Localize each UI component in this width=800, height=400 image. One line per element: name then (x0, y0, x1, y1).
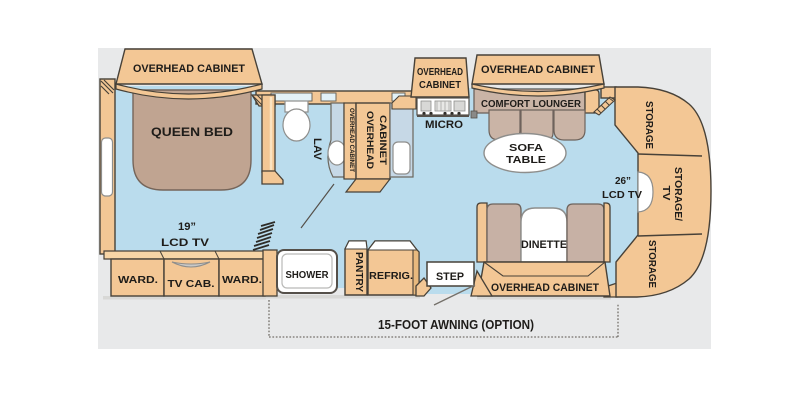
svg-text:LAV: LAV (311, 138, 323, 161)
svg-text:QUEEN BED: QUEEN BED (151, 125, 233, 139)
svg-text:TV CAB.: TV CAB. (168, 278, 215, 290)
svg-text:SHOWER: SHOWER (286, 269, 329, 281)
svg-text:OVERHEAD CABINET: OVERHEAD CABINET (491, 282, 599, 294)
svg-text:WARD.: WARD. (118, 274, 158, 286)
svg-text:REFRIG.: REFRIG. (369, 270, 413, 282)
svg-text:STORAGE: STORAGE (643, 101, 654, 149)
svg-text:OVERHEAD CABINET: OVERHEAD CABINET (348, 108, 354, 172)
svg-text:MICRO: MICRO (425, 119, 463, 131)
svg-text:LCD TV: LCD TV (161, 237, 210, 249)
svg-text:SOFA: SOFA (509, 142, 543, 154)
svg-text:PANTRY: PANTRY (353, 252, 364, 292)
svg-text:DINETTE: DINETTE (521, 239, 567, 251)
svg-text:OVERHEAD: OVERHEAD (417, 67, 463, 78)
svg-text:STEP: STEP (436, 271, 464, 283)
svg-text:TV: TV (660, 186, 671, 201)
svg-text:15-FOOT AWNING (OPTION): 15-FOOT AWNING (OPTION) (378, 318, 534, 332)
svg-text:TABLE: TABLE (506, 154, 546, 166)
svg-text:STORAGE/: STORAGE/ (672, 167, 683, 221)
svg-text:LCD TV: LCD TV (602, 189, 642, 201)
svg-text:26”: 26” (615, 175, 631, 187)
svg-text:19”: 19” (178, 221, 196, 233)
svg-text:CABINET: CABINET (377, 115, 388, 165)
svg-text:OVERHEAD CABINET: OVERHEAD CABINET (481, 64, 595, 76)
svg-text:CABINET: CABINET (419, 80, 461, 91)
svg-text:OVERHEAD: OVERHEAD (364, 111, 375, 169)
svg-text:OVERHEAD CABINET: OVERHEAD CABINET (133, 63, 245, 75)
svg-text:WARD.: WARD. (222, 274, 262, 286)
svg-text:STORAGE: STORAGE (646, 240, 657, 288)
svg-text:COMFORT LOUNGER: COMFORT LOUNGER (481, 98, 581, 110)
